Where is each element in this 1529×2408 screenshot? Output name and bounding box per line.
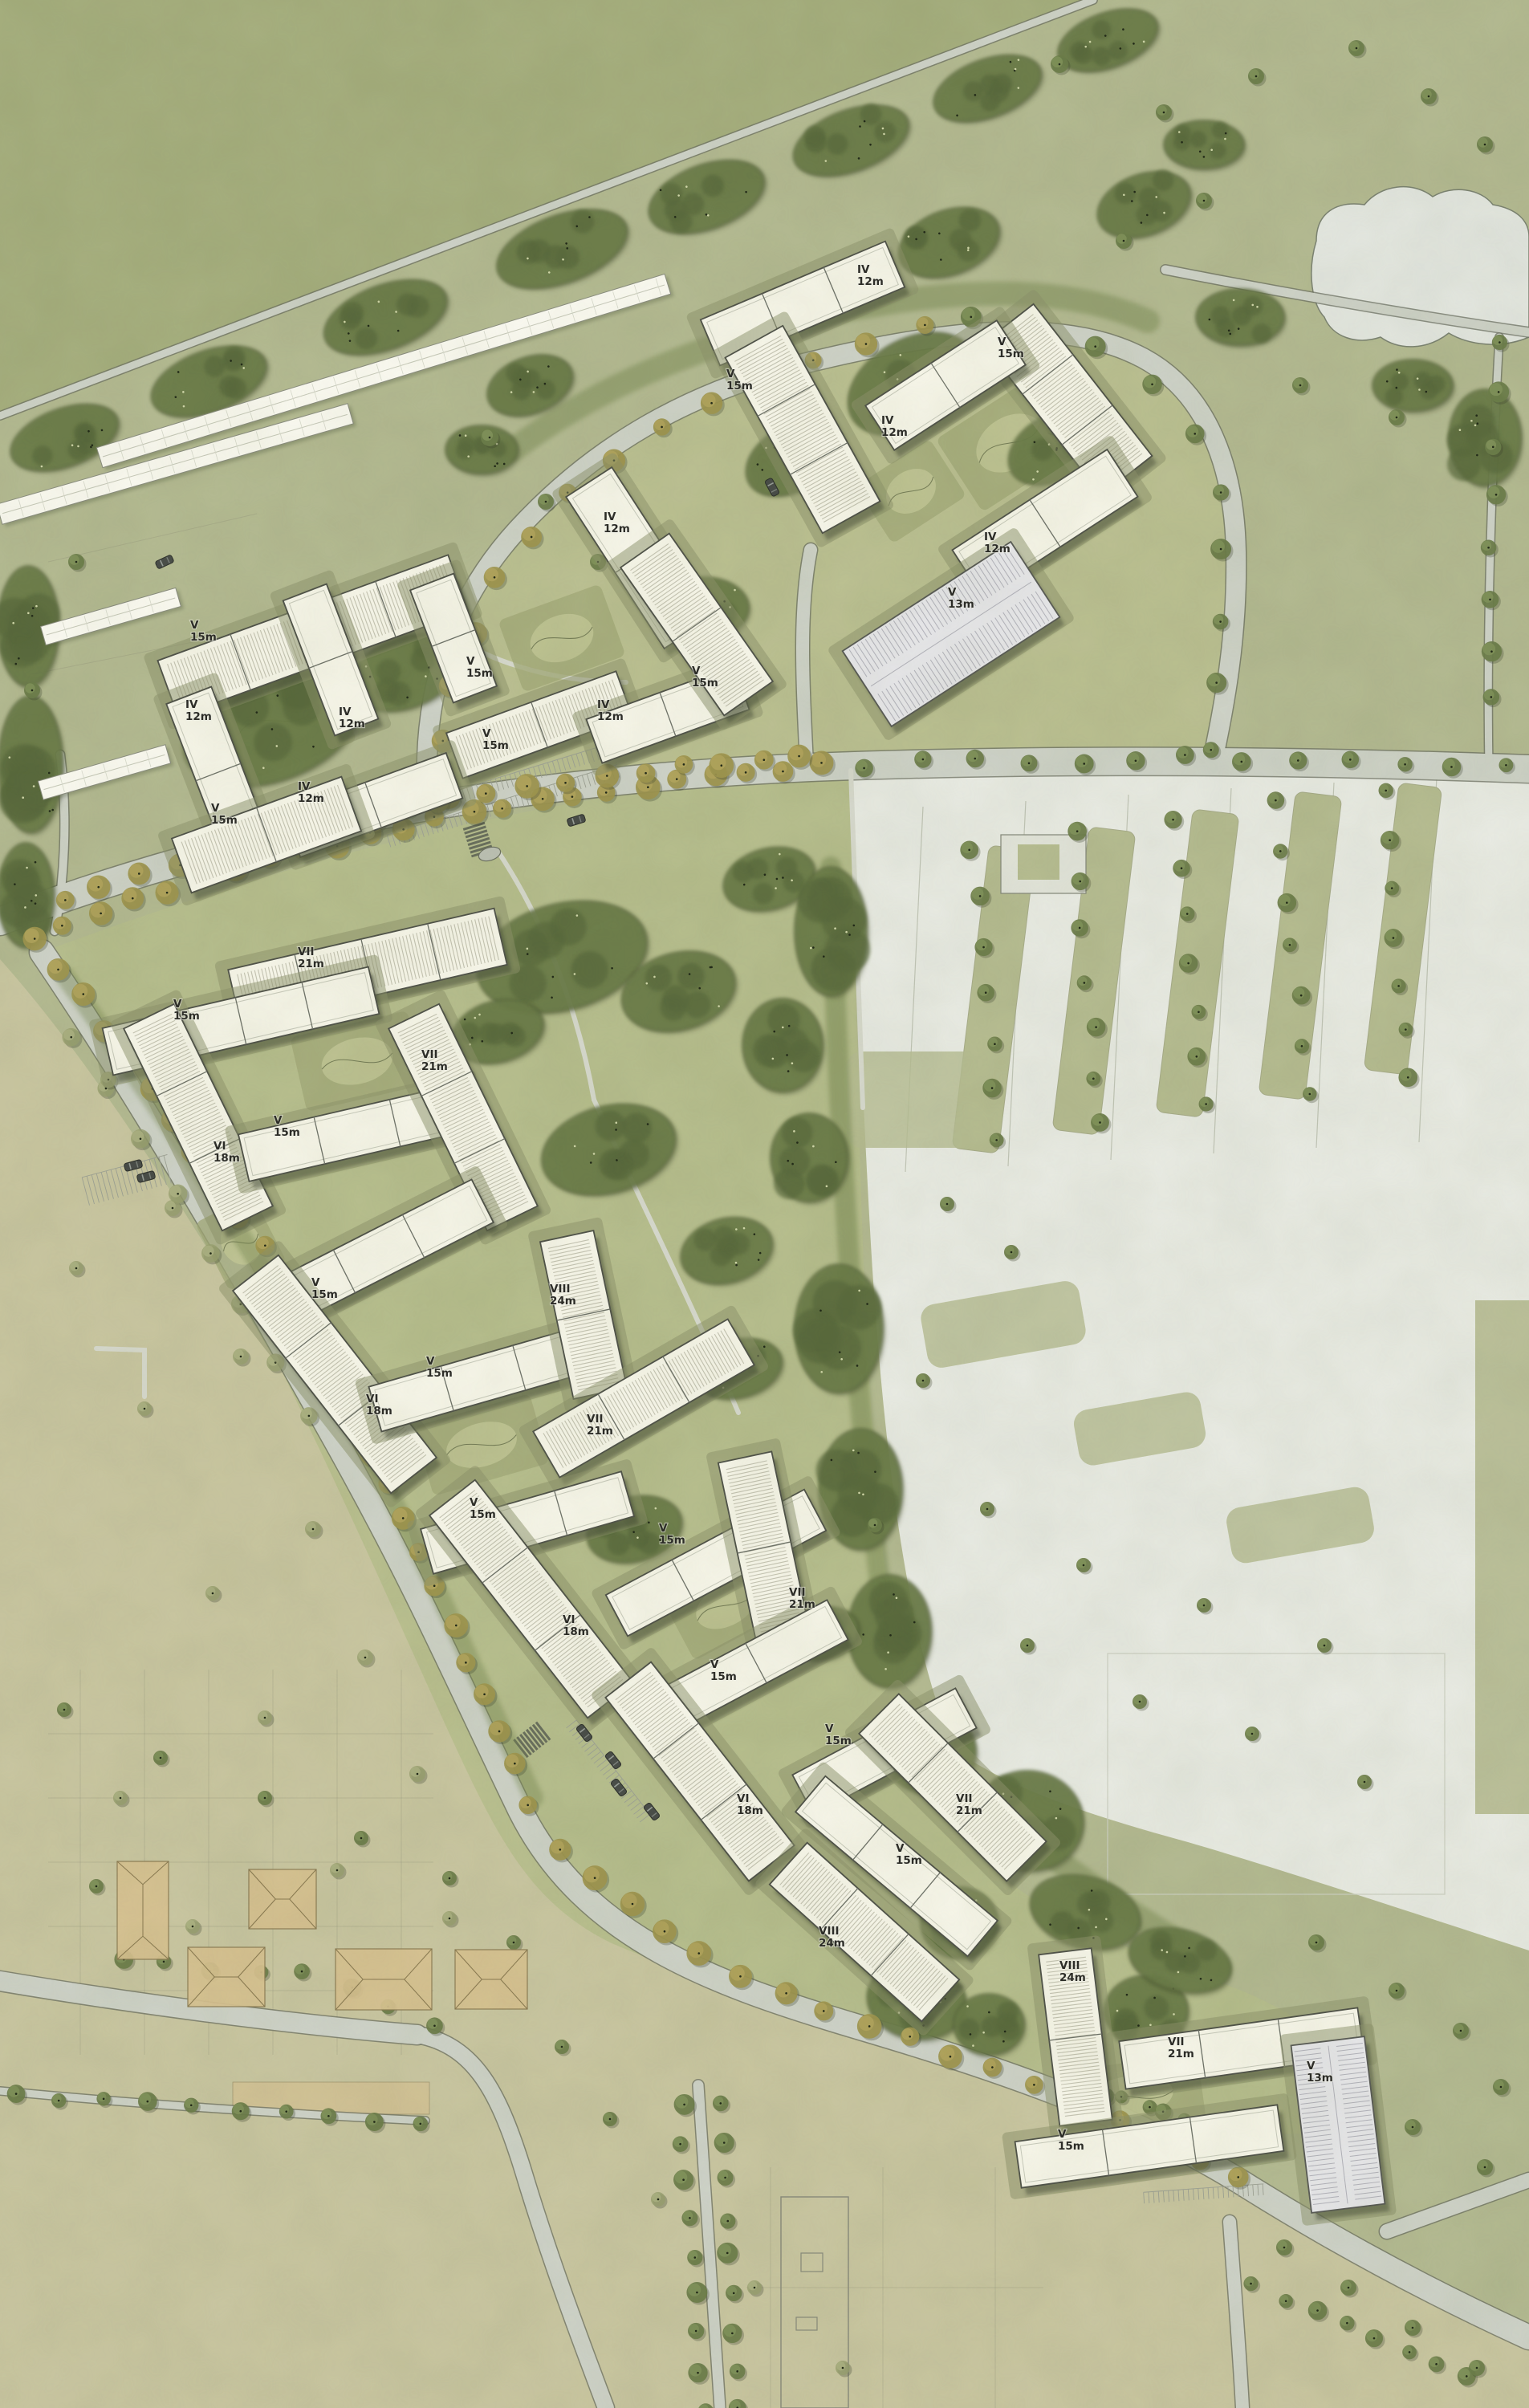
site-plan-canvas: IV12mV15mV15mIV12mIV12mIV12mV13mV15mV15m… (0, 0, 1529, 2408)
masterplan-stage: IV12mV15mV15mIV12mIV12mIV12mV13mV15mV15m… (0, 0, 1529, 2408)
texture-layer (0, 0, 1529, 2408)
